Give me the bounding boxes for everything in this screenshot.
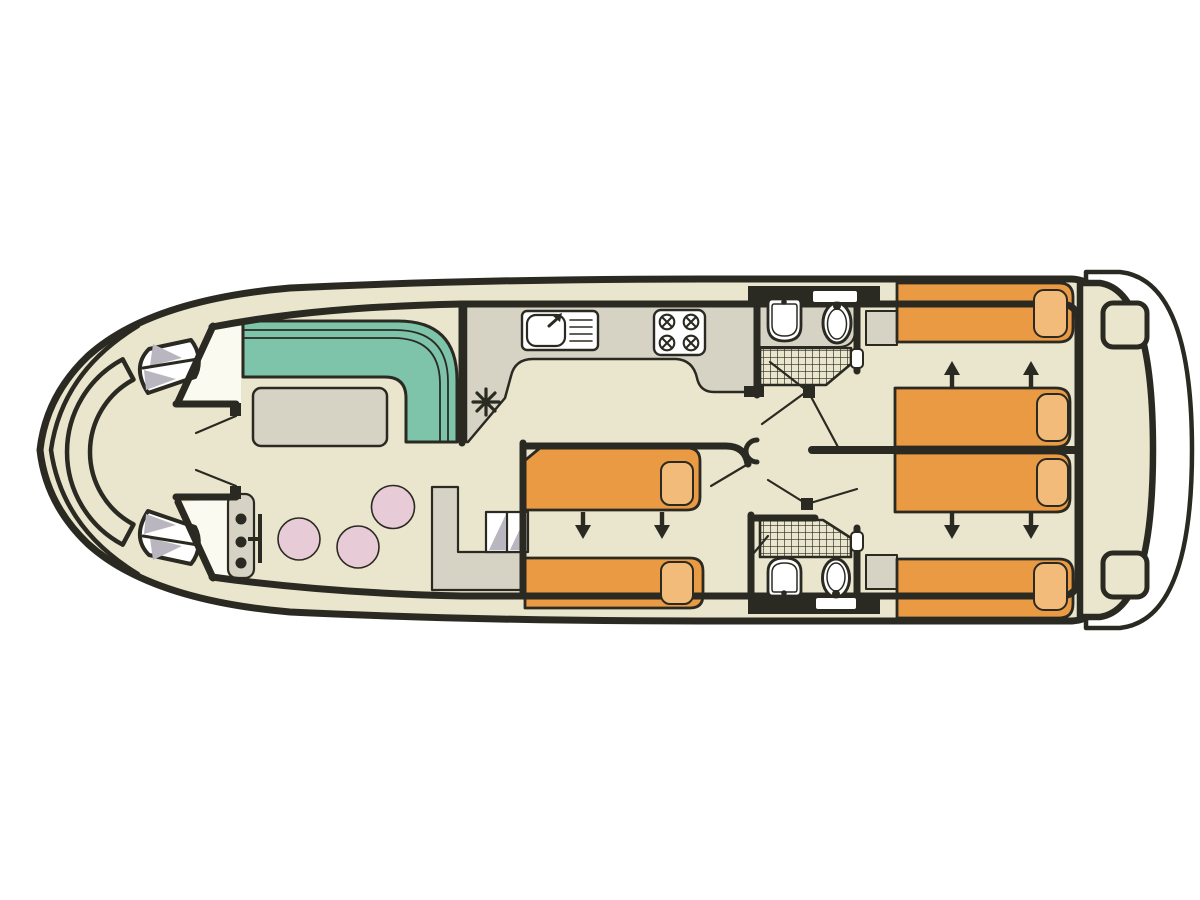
helm-control-knob [236,514,247,525]
window [851,532,863,551]
saloon-table [253,388,387,446]
pillow [1034,290,1067,337]
window [851,349,863,368]
stern-step-bottom [1103,553,1147,597]
helm-control-knob [236,537,247,548]
wall-stub [744,386,764,397]
pillow [1037,394,1068,441]
toilet-hinge [832,590,840,598]
arrow-shaft [950,512,954,527]
helm-control-knob [236,558,247,569]
hull-wall-band-bottom [748,597,880,614]
kitchen-sink-unit [522,311,598,350]
heater-asterisk-icon [473,389,499,415]
pillow [1034,563,1067,610]
throttle-crossbar [248,537,259,541]
pillow [661,562,693,604]
arrow-shaft [1029,512,1033,527]
stool [278,518,320,560]
stool [372,486,415,529]
pillow [1037,459,1068,506]
window [816,598,856,609]
wardrobe-top-cabin [866,311,897,345]
stool [337,526,379,568]
stern-deck [1080,283,1153,617]
wardrobe-bottom-cabin [866,555,897,589]
arrow-shaft [660,512,664,527]
window [813,291,857,302]
faucet-dot [781,299,787,305]
door-post [230,403,241,416]
hob-unit [654,310,705,355]
deck-plan-canvas [0,0,1200,900]
toilet-hinge [833,302,841,310]
arrow-shaft [1029,373,1033,388]
arrow-shaft [581,512,585,527]
door-post [230,486,241,499]
pillow [661,462,693,505]
boat-floor-plan [0,0,1200,900]
faucet-dot [781,590,787,596]
stern-step-top [1103,303,1147,347]
arrow-shaft [950,373,954,388]
